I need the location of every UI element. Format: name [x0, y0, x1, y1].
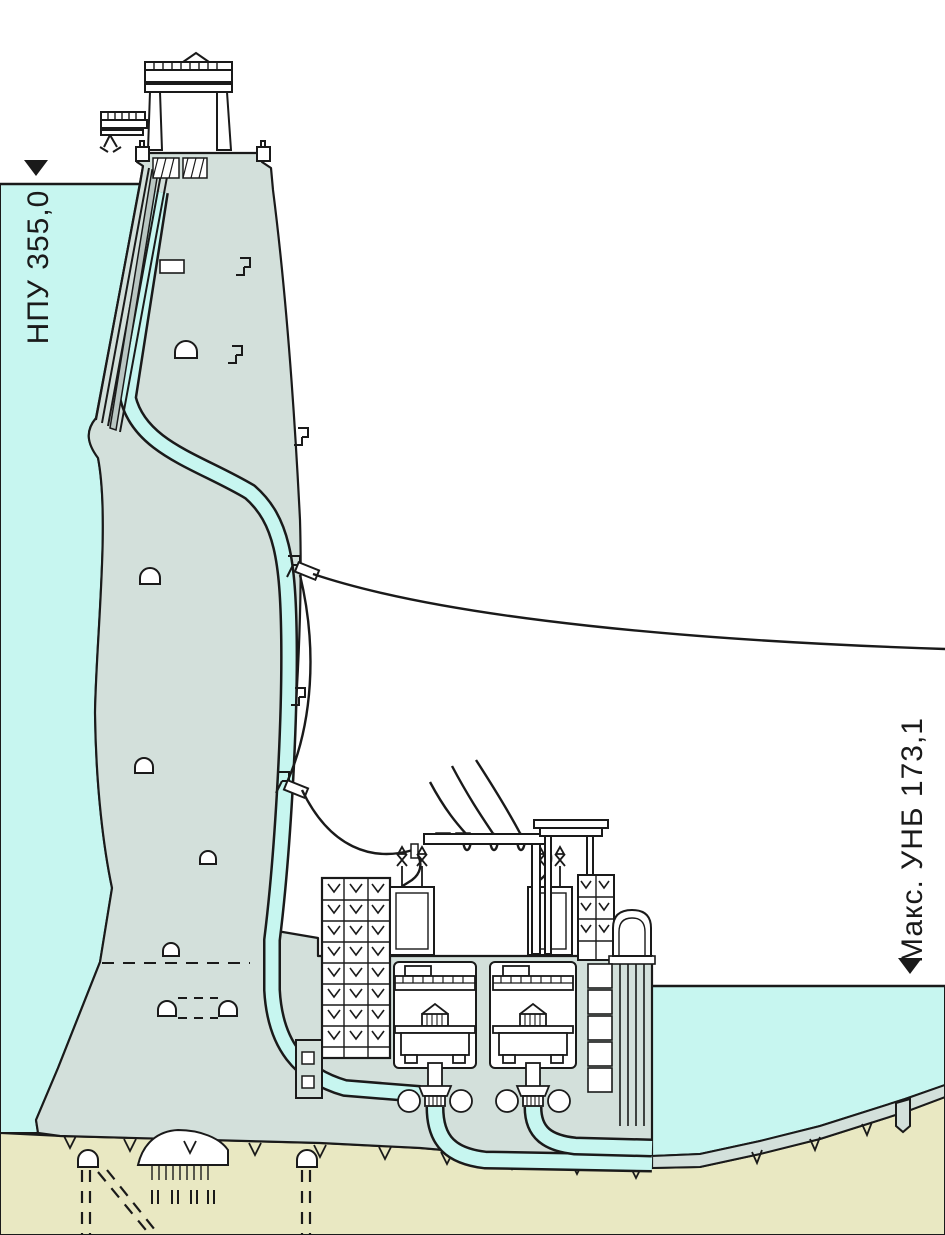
tailwater-level-mark: Макс. УНБ 173,1	[652, 717, 945, 986]
gate-hoist-plinth	[609, 956, 655, 964]
transmission-cables	[288, 574, 945, 887]
gallery	[158, 1001, 176, 1016]
intake-gate-tower	[322, 878, 390, 1058]
portal-post	[545, 836, 551, 954]
gallery	[175, 341, 197, 358]
rack-guide-sleeve	[160, 260, 184, 273]
spiral-case-section	[398, 1090, 420, 1112]
spiral-case-section	[450, 1090, 472, 1112]
spiral-case-section	[548, 1090, 570, 1112]
generator-stator	[401, 1033, 469, 1055]
gallery	[163, 943, 179, 956]
crane-roof-peak	[183, 53, 209, 62]
crane-bridge-girder	[145, 70, 232, 82]
cantilever-girder	[101, 120, 147, 128]
turbine-runner	[523, 1096, 543, 1106]
portal-beam	[540, 828, 602, 836]
busbar-support-column	[532, 844, 540, 954]
cantilever-lower-chord	[101, 130, 143, 135]
generator-foot	[405, 1055, 417, 1063]
portal-cap	[534, 820, 608, 828]
long-span-cable	[313, 574, 945, 649]
upstream-step-block	[296, 1040, 322, 1098]
overhead-cable	[476, 760, 521, 835]
apron-anchor-notch	[896, 1099, 910, 1132]
generator-top-plate	[493, 1026, 573, 1033]
turbine-shaft	[526, 1063, 540, 1087]
overhead-cable	[430, 782, 467, 835]
turbine-head-cover	[517, 1086, 549, 1096]
overhead-crane-trolley	[405, 966, 431, 976]
diagram-canvas: НПУ 355,0 Макс. УНБ 173,1	[0, 0, 945, 1235]
gallery	[297, 1150, 317, 1167]
generator-foot	[503, 1055, 515, 1063]
gallery	[140, 568, 160, 584]
spiral-case-section	[496, 1090, 518, 1112]
generator-foot	[551, 1055, 563, 1063]
exciter-body	[520, 1014, 546, 1026]
headwater-level-label: НПУ 355,0	[22, 190, 55, 345]
crane-leg-left	[148, 92, 162, 150]
crane-railing	[145, 62, 232, 70]
generating-unit-2	[493, 966, 573, 1112]
jumper-pin	[411, 844, 418, 858]
generating-unit-1	[395, 966, 475, 1112]
turbine-head-cover	[419, 1086, 451, 1096]
dam-cross-section-diagram: НПУ 355,0 Макс. УНБ 173,1	[0, 0, 945, 1235]
right-wall-blocks	[588, 964, 612, 1092]
generator-stator	[499, 1033, 567, 1055]
gallery	[219, 1001, 237, 1016]
crane-hook	[100, 135, 121, 152]
generator-foot	[453, 1055, 465, 1063]
exciter-body	[422, 1014, 448, 1026]
level-marker-triangle-icon	[24, 160, 48, 176]
generator-top-plate	[395, 1026, 475, 1033]
transformer-1	[390, 847, 434, 955]
powerhouse-feed-cable	[302, 790, 413, 854]
gallery	[200, 851, 216, 864]
busbar-beam	[424, 834, 546, 844]
crane-leg-right	[217, 92, 231, 150]
overhead-crane-trolley	[503, 966, 529, 976]
crane-lower-girder	[145, 84, 232, 92]
turbine-runner	[425, 1096, 445, 1106]
gallery	[135, 758, 153, 773]
turbine-shaft	[428, 1063, 442, 1087]
gallery	[78, 1150, 98, 1167]
tailwater-level-label: Макс. УНБ 173,1	[896, 717, 929, 963]
